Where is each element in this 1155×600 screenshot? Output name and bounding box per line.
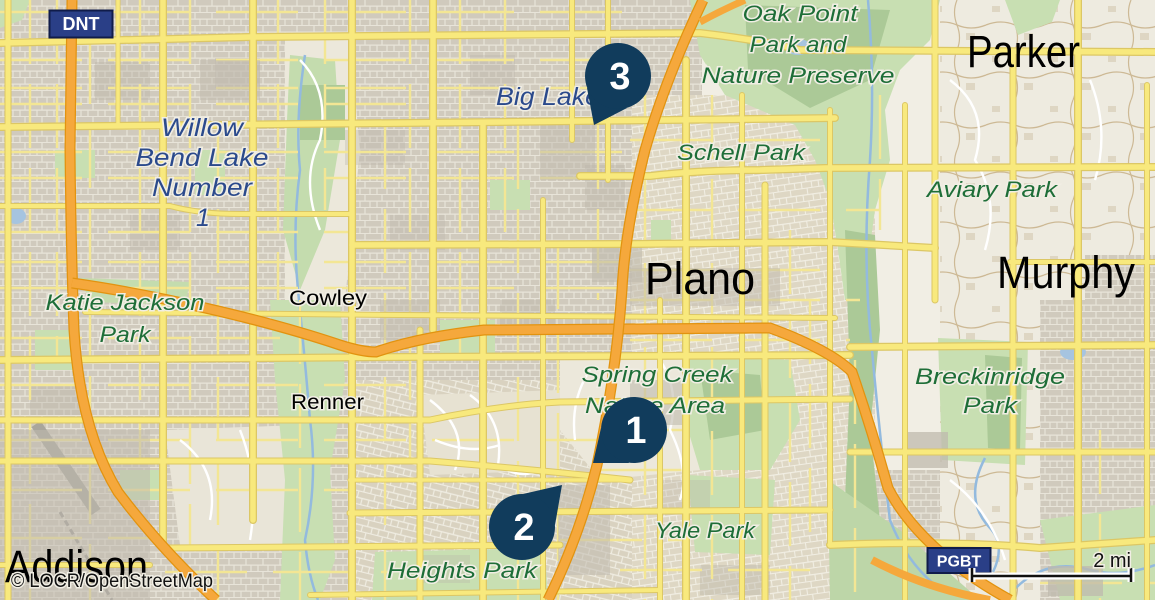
svg-text:Murphy: Murphy — [997, 247, 1135, 298]
svg-text:Park: Park — [100, 322, 152, 347]
svg-text:Aviary Park: Aviary Park — [925, 177, 1058, 202]
svg-text:3: 3 — [609, 56, 630, 98]
svg-text:Plano: Plano — [645, 253, 755, 304]
svg-text:Yale Park: Yale Park — [655, 518, 756, 543]
svg-text:Spring Creek: Spring Creek — [582, 362, 734, 387]
svg-text:Cowley: Cowley — [289, 287, 368, 310]
svg-text:Big Lake: Big Lake — [496, 83, 600, 111]
svg-text:Heights Park: Heights Park — [387, 558, 538, 583]
svg-text:1: 1 — [196, 204, 210, 232]
svg-text:Katie Jackson: Katie Jackson — [46, 290, 205, 315]
svg-text:Park and: Park and — [750, 32, 848, 57]
svg-text:Schell Park: Schell Park — [677, 140, 806, 165]
svg-text:2 mi: 2 mi — [1093, 550, 1131, 572]
svg-text:Renner: Renner — [291, 391, 364, 414]
svg-text:Breckinridge: Breckinridge — [915, 364, 1065, 389]
svg-text:Park: Park — [963, 393, 1018, 418]
svg-text:1: 1 — [625, 410, 646, 452]
svg-text:DNT: DNT — [63, 14, 100, 34]
svg-text:Nature Preserve: Nature Preserve — [702, 63, 895, 88]
svg-text:Bend Lake: Bend Lake — [136, 144, 269, 172]
svg-text:© LOCR/OpenStreetMap: © LOCR/OpenStreetMap — [11, 571, 213, 592]
svg-text:Willow: Willow — [161, 114, 245, 142]
svg-text:Number: Number — [152, 174, 254, 202]
svg-text:PGBT: PGBT — [937, 554, 982, 571]
svg-text:Parker: Parker — [967, 26, 1080, 77]
svg-text:Oak Point: Oak Point — [743, 1, 859, 26]
svg-text:2: 2 — [513, 507, 534, 549]
